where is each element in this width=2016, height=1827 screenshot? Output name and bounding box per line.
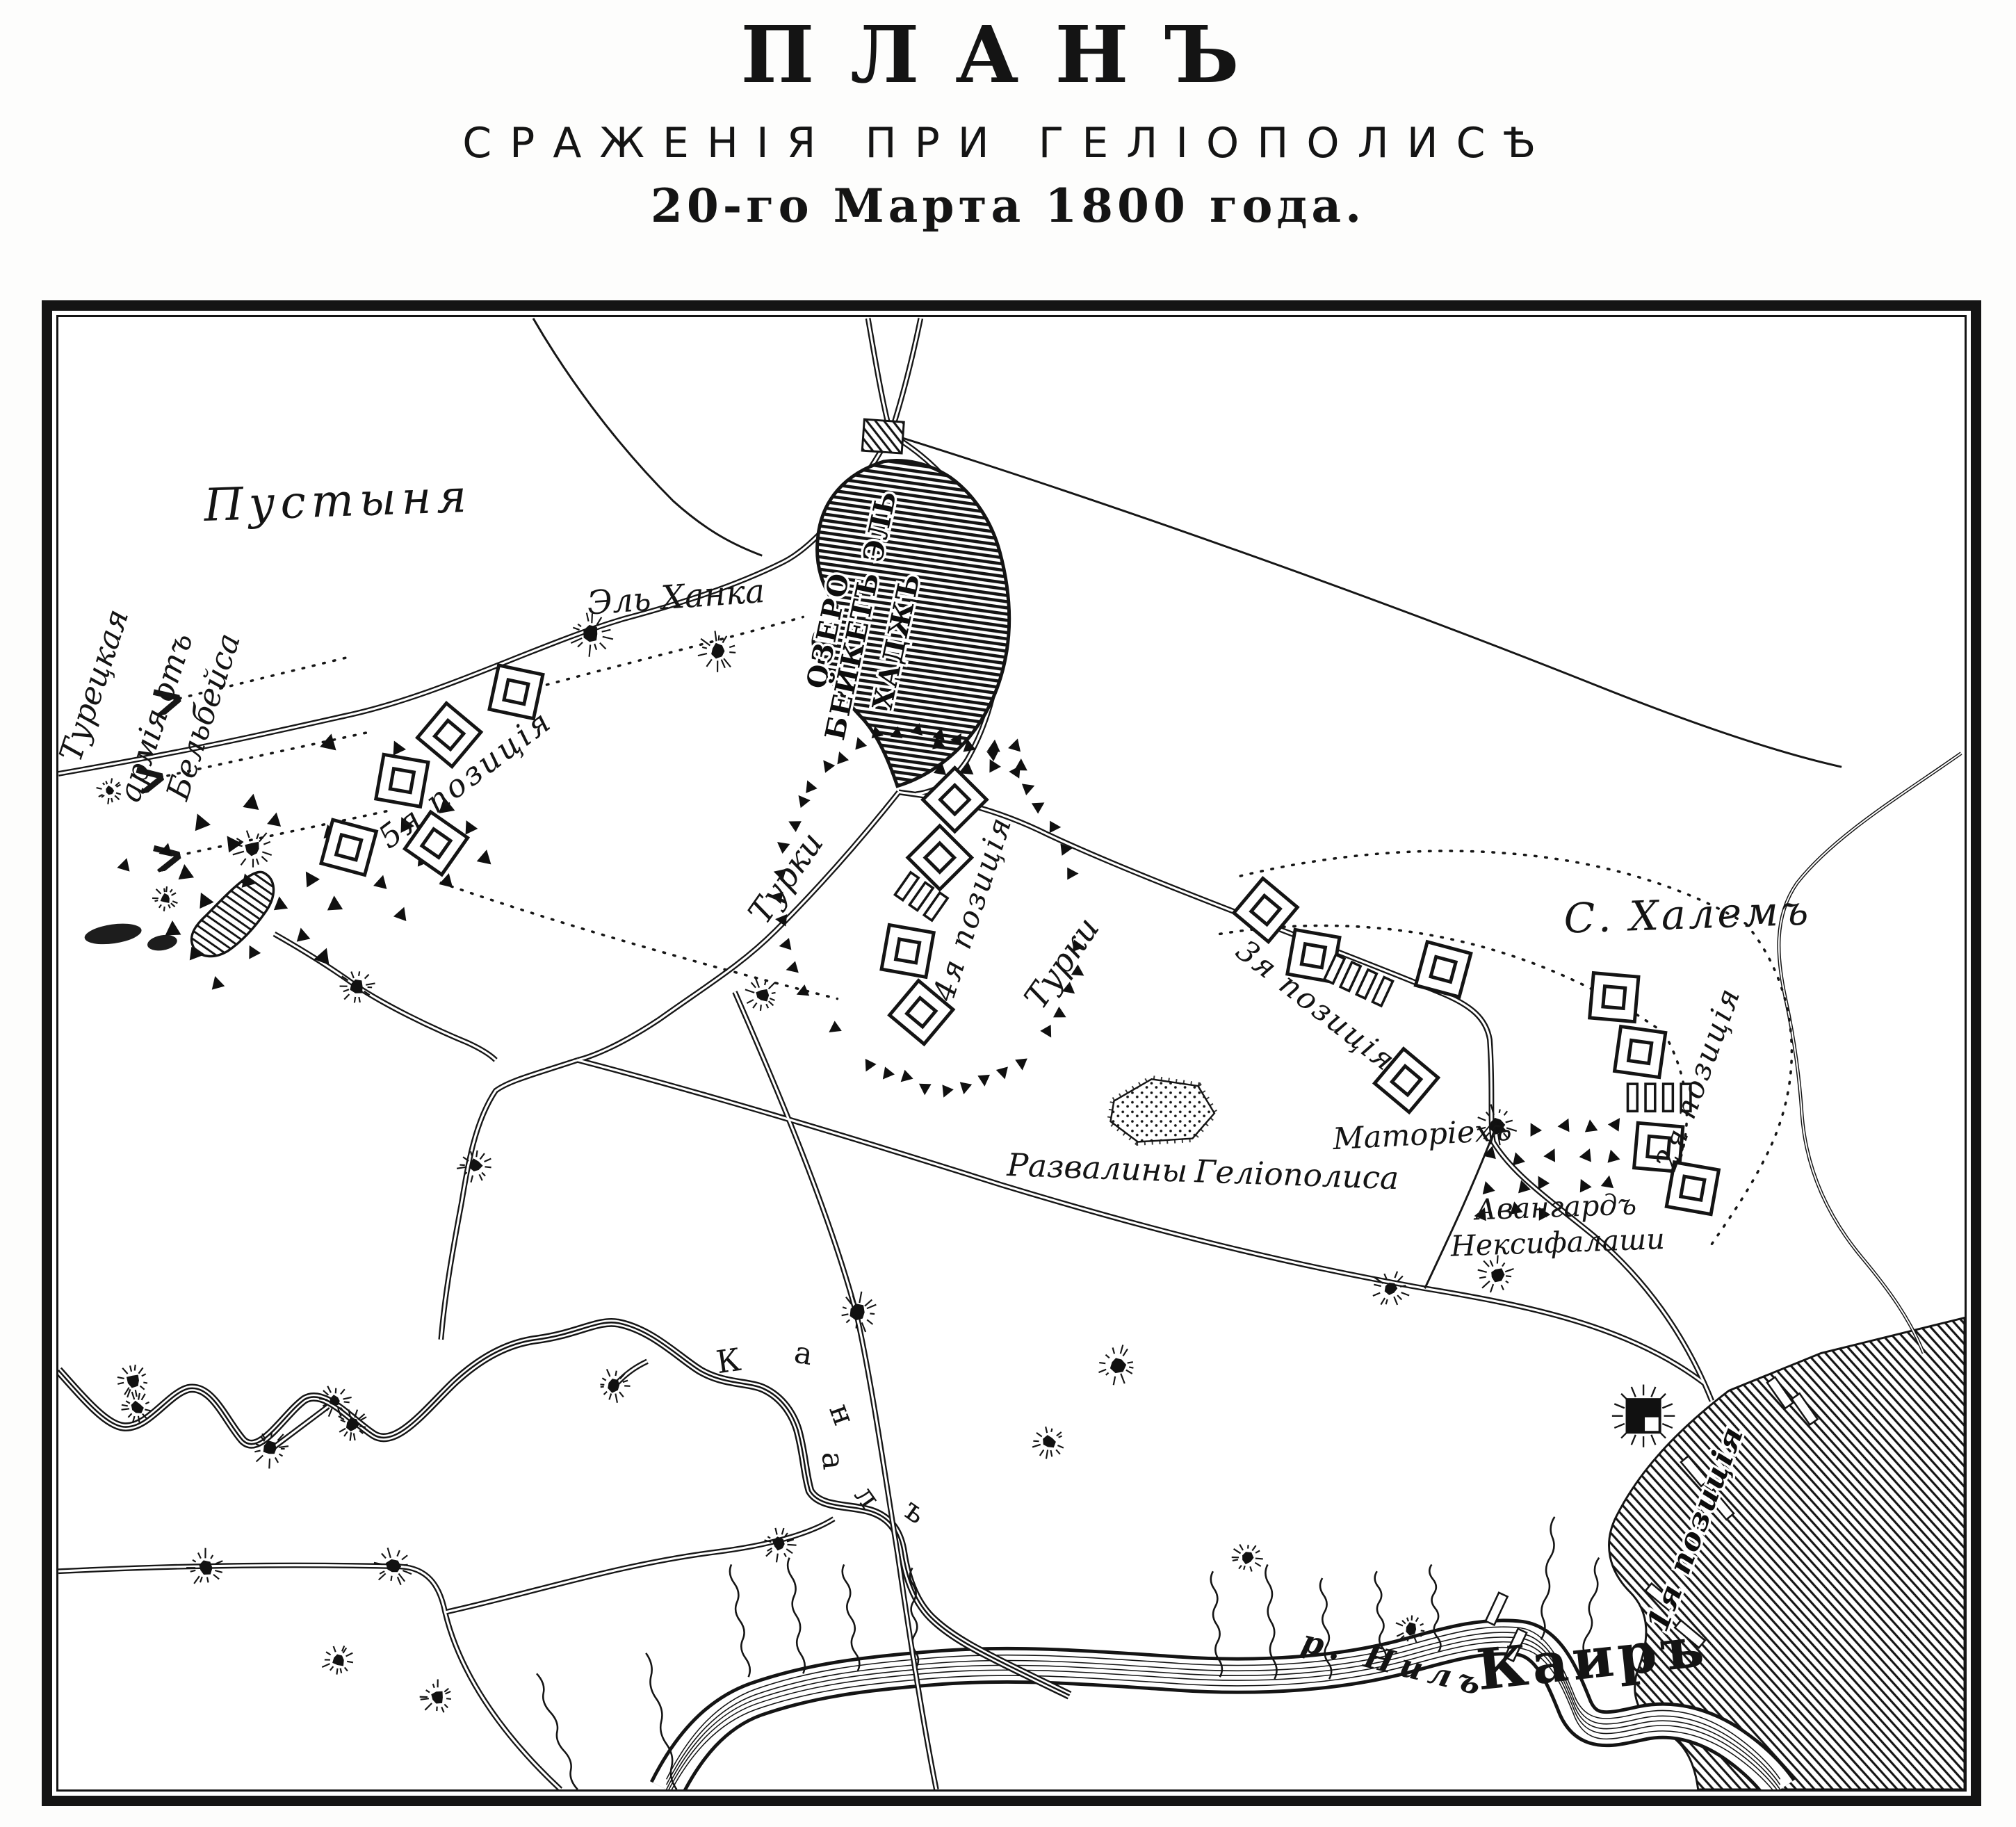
heliopolis-ruins-patch [1111, 1079, 1214, 1142]
label-canal-letter-1: К [714, 1341, 743, 1381]
map-frame-inner-border: Пустыня Турецкая армія отъ Бельбейса Эль… [56, 315, 1967, 1792]
label-s-khalem: С. Халемъ [1563, 886, 1812, 942]
label-position-2: 2я позиція [1649, 982, 1748, 1176]
label-avantgarde-2: Нексифалаши [1449, 1222, 1666, 1263]
label-canal-letter-3: н [822, 1399, 861, 1430]
label-desert: Пустыня [202, 471, 473, 532]
title-block: ПЛАНЪ СРАЖЕНІЯ ПРИ ГЕЛІОПОЛИСѢ 20-го Мар… [0, 0, 2016, 233]
label-canal-letter-2: а [792, 1335, 815, 1373]
battle-map: Пустыня Турецкая армія отъ Бельбейса Эль… [58, 317, 1965, 1789]
label-ruins-1: Развалины [1006, 1146, 1188, 1189]
map-frame: Пустыня Турецкая армія отъ Бельбейса Эль… [42, 300, 1981, 1806]
label-avantgarde-1: Авангардъ [1472, 1187, 1637, 1226]
label-turks-east: Турки [1017, 910, 1107, 1016]
label-canal-letter-6: ъ [897, 1492, 932, 1532]
label-el-khanka: Эль Ханка [586, 572, 766, 623]
label-matarieh: Маторіехъ [1331, 1113, 1513, 1157]
map-title: ПЛАНЪ [0, 10, 2016, 101]
map-date: 20-го Марта 1800 года. [0, 179, 2016, 233]
map-subtitle: СРАЖЕНІЯ ПРИ ГЕЛІОПОЛИСѢ [0, 119, 2016, 168]
label-turkish-army-1: Турецкая [58, 605, 136, 766]
label-ruins-2: Геліополиса [1194, 1153, 1399, 1196]
label-canal-letter-4: а [815, 1450, 851, 1471]
